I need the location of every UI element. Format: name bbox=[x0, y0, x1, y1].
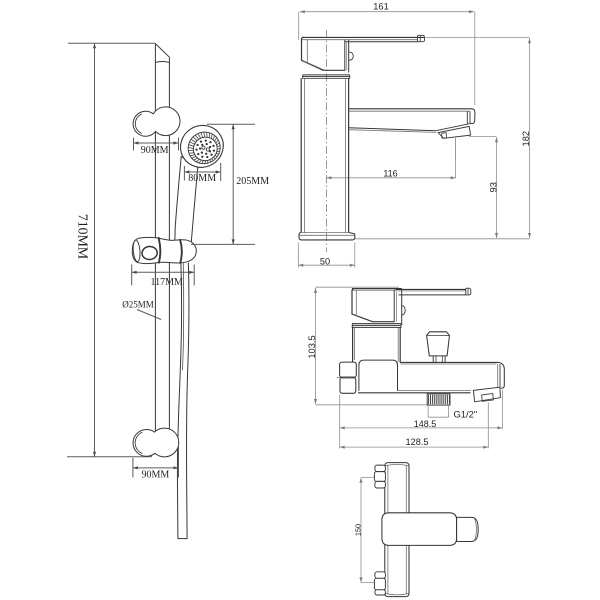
svg-text:93: 93 bbox=[488, 182, 498, 192]
svg-text:710MM: 710MM bbox=[75, 214, 90, 259]
svg-text:117MM: 117MM bbox=[150, 277, 183, 288]
svg-text:150: 150 bbox=[354, 524, 363, 536]
svg-text:103.5: 103.5 bbox=[307, 335, 317, 358]
svg-text:G1/2": G1/2" bbox=[454, 408, 478, 419]
svg-text:50: 50 bbox=[320, 257, 330, 267]
svg-text:205MM: 205MM bbox=[236, 176, 269, 187]
svg-text:90MM: 90MM bbox=[142, 469, 170, 480]
svg-text:161: 161 bbox=[373, 2, 389, 12]
svg-text:116: 116 bbox=[383, 169, 397, 179]
svg-text:182: 182 bbox=[521, 131, 531, 147]
svg-text:90MM: 90MM bbox=[141, 145, 169, 156]
svg-text:128.5: 128.5 bbox=[406, 437, 429, 447]
svg-text:Ø25MM: Ø25MM bbox=[122, 300, 154, 310]
svg-text:148.5: 148.5 bbox=[414, 419, 437, 429]
svg-text:80MM: 80MM bbox=[188, 173, 216, 184]
